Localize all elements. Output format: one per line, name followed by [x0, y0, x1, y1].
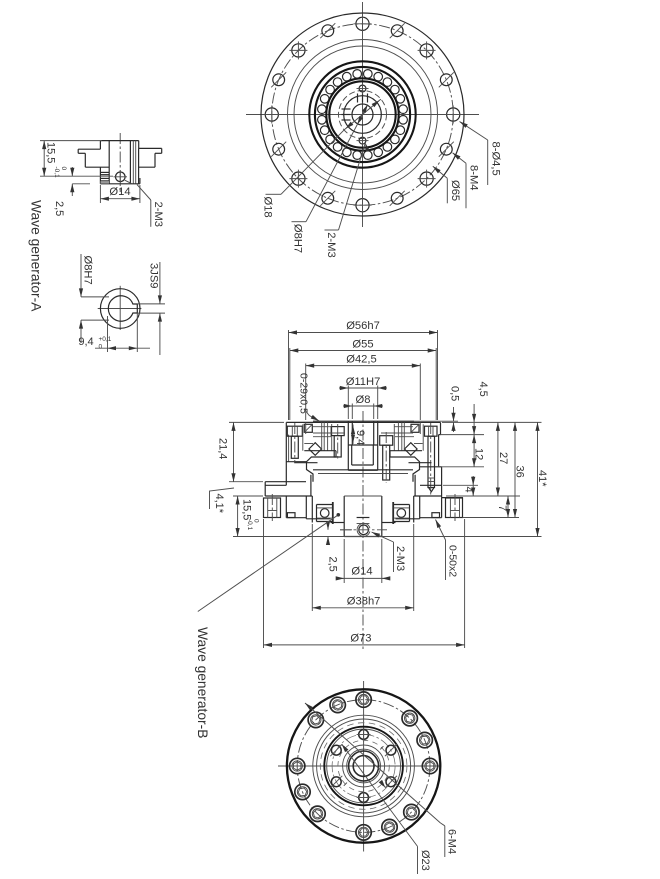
svg-text:Wave generator-B: Wave generator-B: [195, 627, 210, 738]
svg-text:36: 36: [514, 466, 526, 478]
svg-text:Ø8H7: Ø8H7: [292, 224, 304, 253]
svg-text:0: 0: [99, 344, 103, 351]
svg-text:7: 7: [496, 505, 508, 511]
svg-text:Ø56h7: Ø56h7: [346, 320, 380, 332]
svg-text:9,4: 9,4: [78, 336, 93, 348]
svg-text:0,5: 0,5: [449, 386, 461, 401]
svg-text:4,5: 4,5: [477, 382, 489, 397]
svg-text:Ø65: Ø65: [449, 180, 461, 201]
svg-text:9,4: 9,4: [354, 430, 366, 445]
svg-text:Ø18: Ø18: [262, 197, 274, 218]
svg-text:27: 27: [497, 452, 509, 464]
svg-text:4: 4: [463, 487, 475, 493]
svg-text:Ø23: Ø23: [419, 850, 431, 871]
svg-text:12: 12: [473, 448, 485, 460]
svg-text:2,5: 2,5: [53, 201, 65, 216]
svg-text:8-Ø4,5: 8-Ø4,5: [490, 142, 502, 176]
svg-text:Ø14: Ø14: [351, 566, 372, 578]
svg-text:0: 0: [60, 167, 67, 171]
svg-text:Ø42,5: Ø42,5: [346, 354, 376, 366]
svg-text:Wave generator-A: Wave generator-A: [29, 200, 44, 312]
svg-text:Ø73: Ø73: [350, 633, 371, 645]
svg-text:4,1*: 4,1*: [213, 494, 225, 514]
svg-text:15,5: 15,5: [241, 499, 253, 520]
svg-text:2-M3: 2-M3: [152, 202, 164, 228]
svg-text:Ø8H7: Ø8H7: [82, 256, 94, 285]
svg-text:3JS9: 3JS9: [148, 263, 160, 289]
svg-text:41*: 41*: [536, 470, 548, 487]
svg-text:Ø55: Ø55: [352, 339, 373, 351]
svg-text:-0,1: -0,1: [53, 167, 60, 179]
svg-text:Ø8: Ø8: [356, 394, 371, 406]
svg-text:21,4: 21,4: [217, 438, 229, 459]
svg-text:0-50x2: 0-50x2: [447, 545, 459, 577]
svg-text:Ø14: Ø14: [109, 186, 130, 198]
svg-text:+0,1: +0,1: [99, 336, 112, 343]
svg-text:Ø11H7: Ø11H7: [346, 376, 381, 388]
svg-text:-0,1: -0,1: [246, 519, 253, 531]
svg-text:15,5: 15,5: [45, 142, 57, 163]
svg-text:0-29x0,5: 0-29x0,5: [298, 373, 310, 414]
svg-text:2-M3: 2-M3: [325, 232, 337, 258]
svg-text:8-M4: 8-M4: [468, 165, 480, 191]
svg-text:6-M4: 6-M4: [446, 829, 458, 854]
svg-text:2,5: 2,5: [327, 557, 339, 572]
svg-text:Ø38h7: Ø38h7: [347, 596, 381, 608]
svg-text:2-M3: 2-M3: [394, 546, 406, 571]
